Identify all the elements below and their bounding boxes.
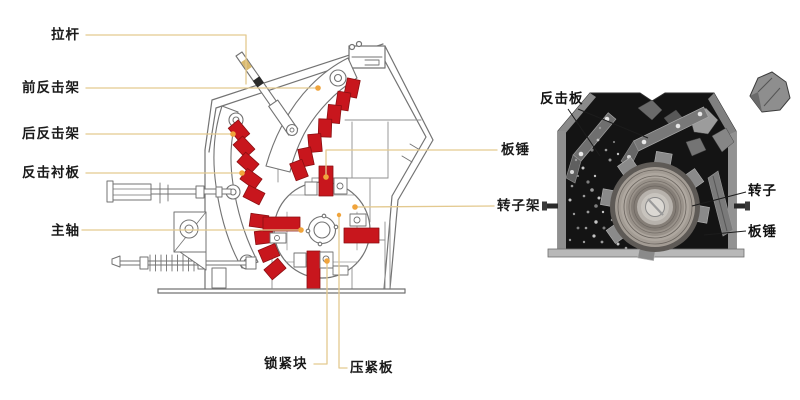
machine-base [158,289,405,293]
label-rear-impact-frame: 后反击架 [0,127,80,141]
diagram-canvas [0,0,800,400]
label-main-shaft: 主轴 [0,224,80,238]
rock-top-right [750,72,790,112]
label-photo-rotor: 转子 [748,184,777,198]
label-photo-blow-bar: 板锤 [748,225,777,239]
label-locking-block: 锁紧块 [264,357,308,371]
impact-crusher-diagram-page: 拉杆 前反击架 后反击架 反击衬板 主轴 板锤 转子架 锁紧块 压紧板 反击板 … [0,0,800,400]
label-rotor-frame: 转子架 [497,199,541,213]
label-tie-rod: 拉杆 [0,28,80,42]
crusher-cross-section [82,35,497,368]
tie-rod [236,52,298,136]
label-blow-bar: 板锤 [501,143,530,157]
label-impact-liner: 反击衬板 [0,166,80,180]
label-pressing-plate: 压紧板 [350,361,394,375]
label-photo-impact-plate: 反击板 [540,92,584,106]
label-front-impact-frame: 前反击架 [0,81,80,95]
